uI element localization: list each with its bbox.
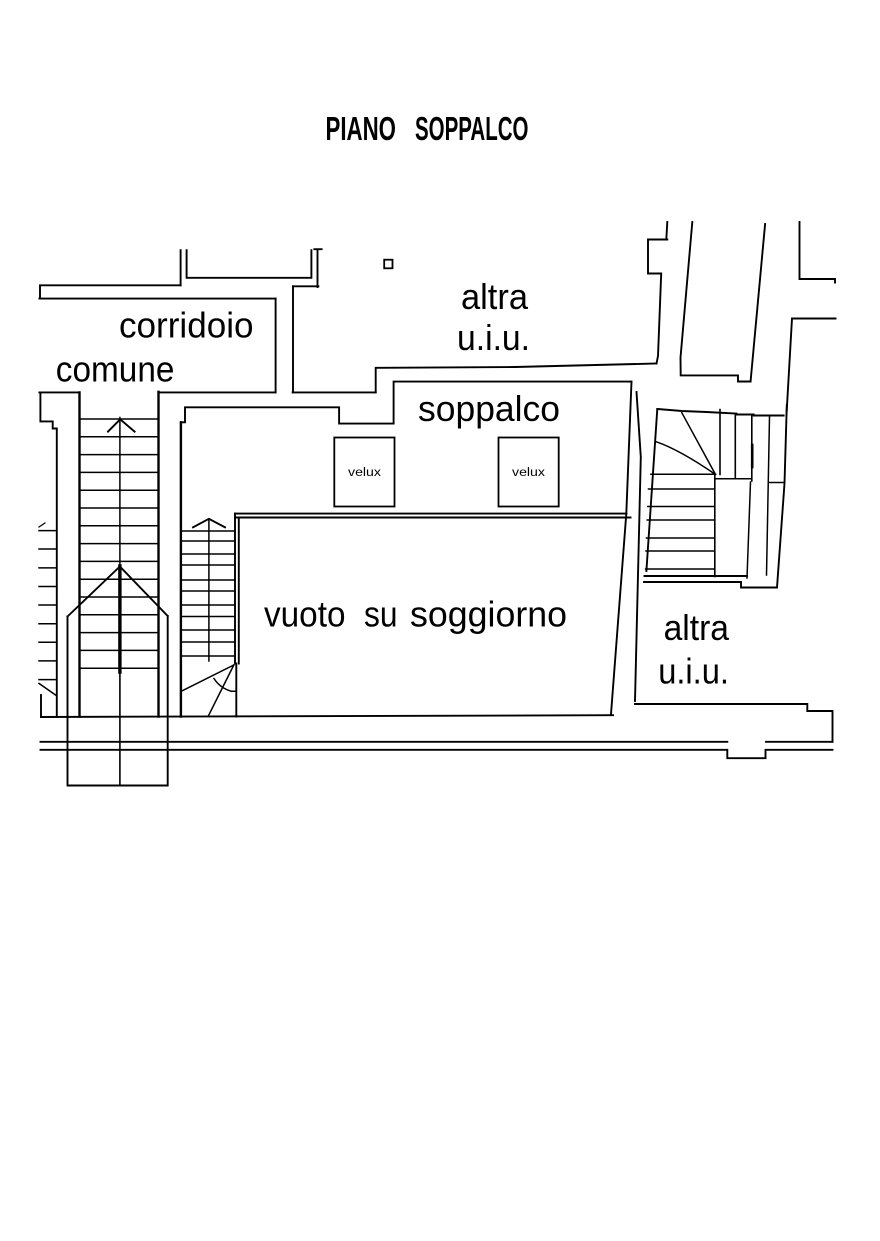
svg-text:altra: altra — [461, 276, 529, 317]
svg-text:u.i.u.: u.i.u. — [658, 651, 729, 692]
svg-text:soggiorno: soggiorno — [410, 594, 567, 635]
svg-text:vuoto: vuoto — [264, 594, 346, 635]
svg-text:altra: altra — [664, 607, 730, 648]
svg-text:soppalco: soppalco — [418, 388, 560, 429]
svg-text:comune: comune — [56, 349, 175, 390]
svg-text:su: su — [364, 594, 398, 635]
svg-text:corridoio: corridoio — [119, 305, 254, 346]
svg-text:u.i.u.: u.i.u. — [457, 317, 530, 358]
svg-text:PIANO: PIANO — [326, 110, 397, 147]
svg-text:velux: velux — [348, 467, 381, 479]
svg-text:SOPPALCO: SOPPALCO — [415, 110, 529, 147]
svg-text:velux: velux — [512, 467, 545, 479]
